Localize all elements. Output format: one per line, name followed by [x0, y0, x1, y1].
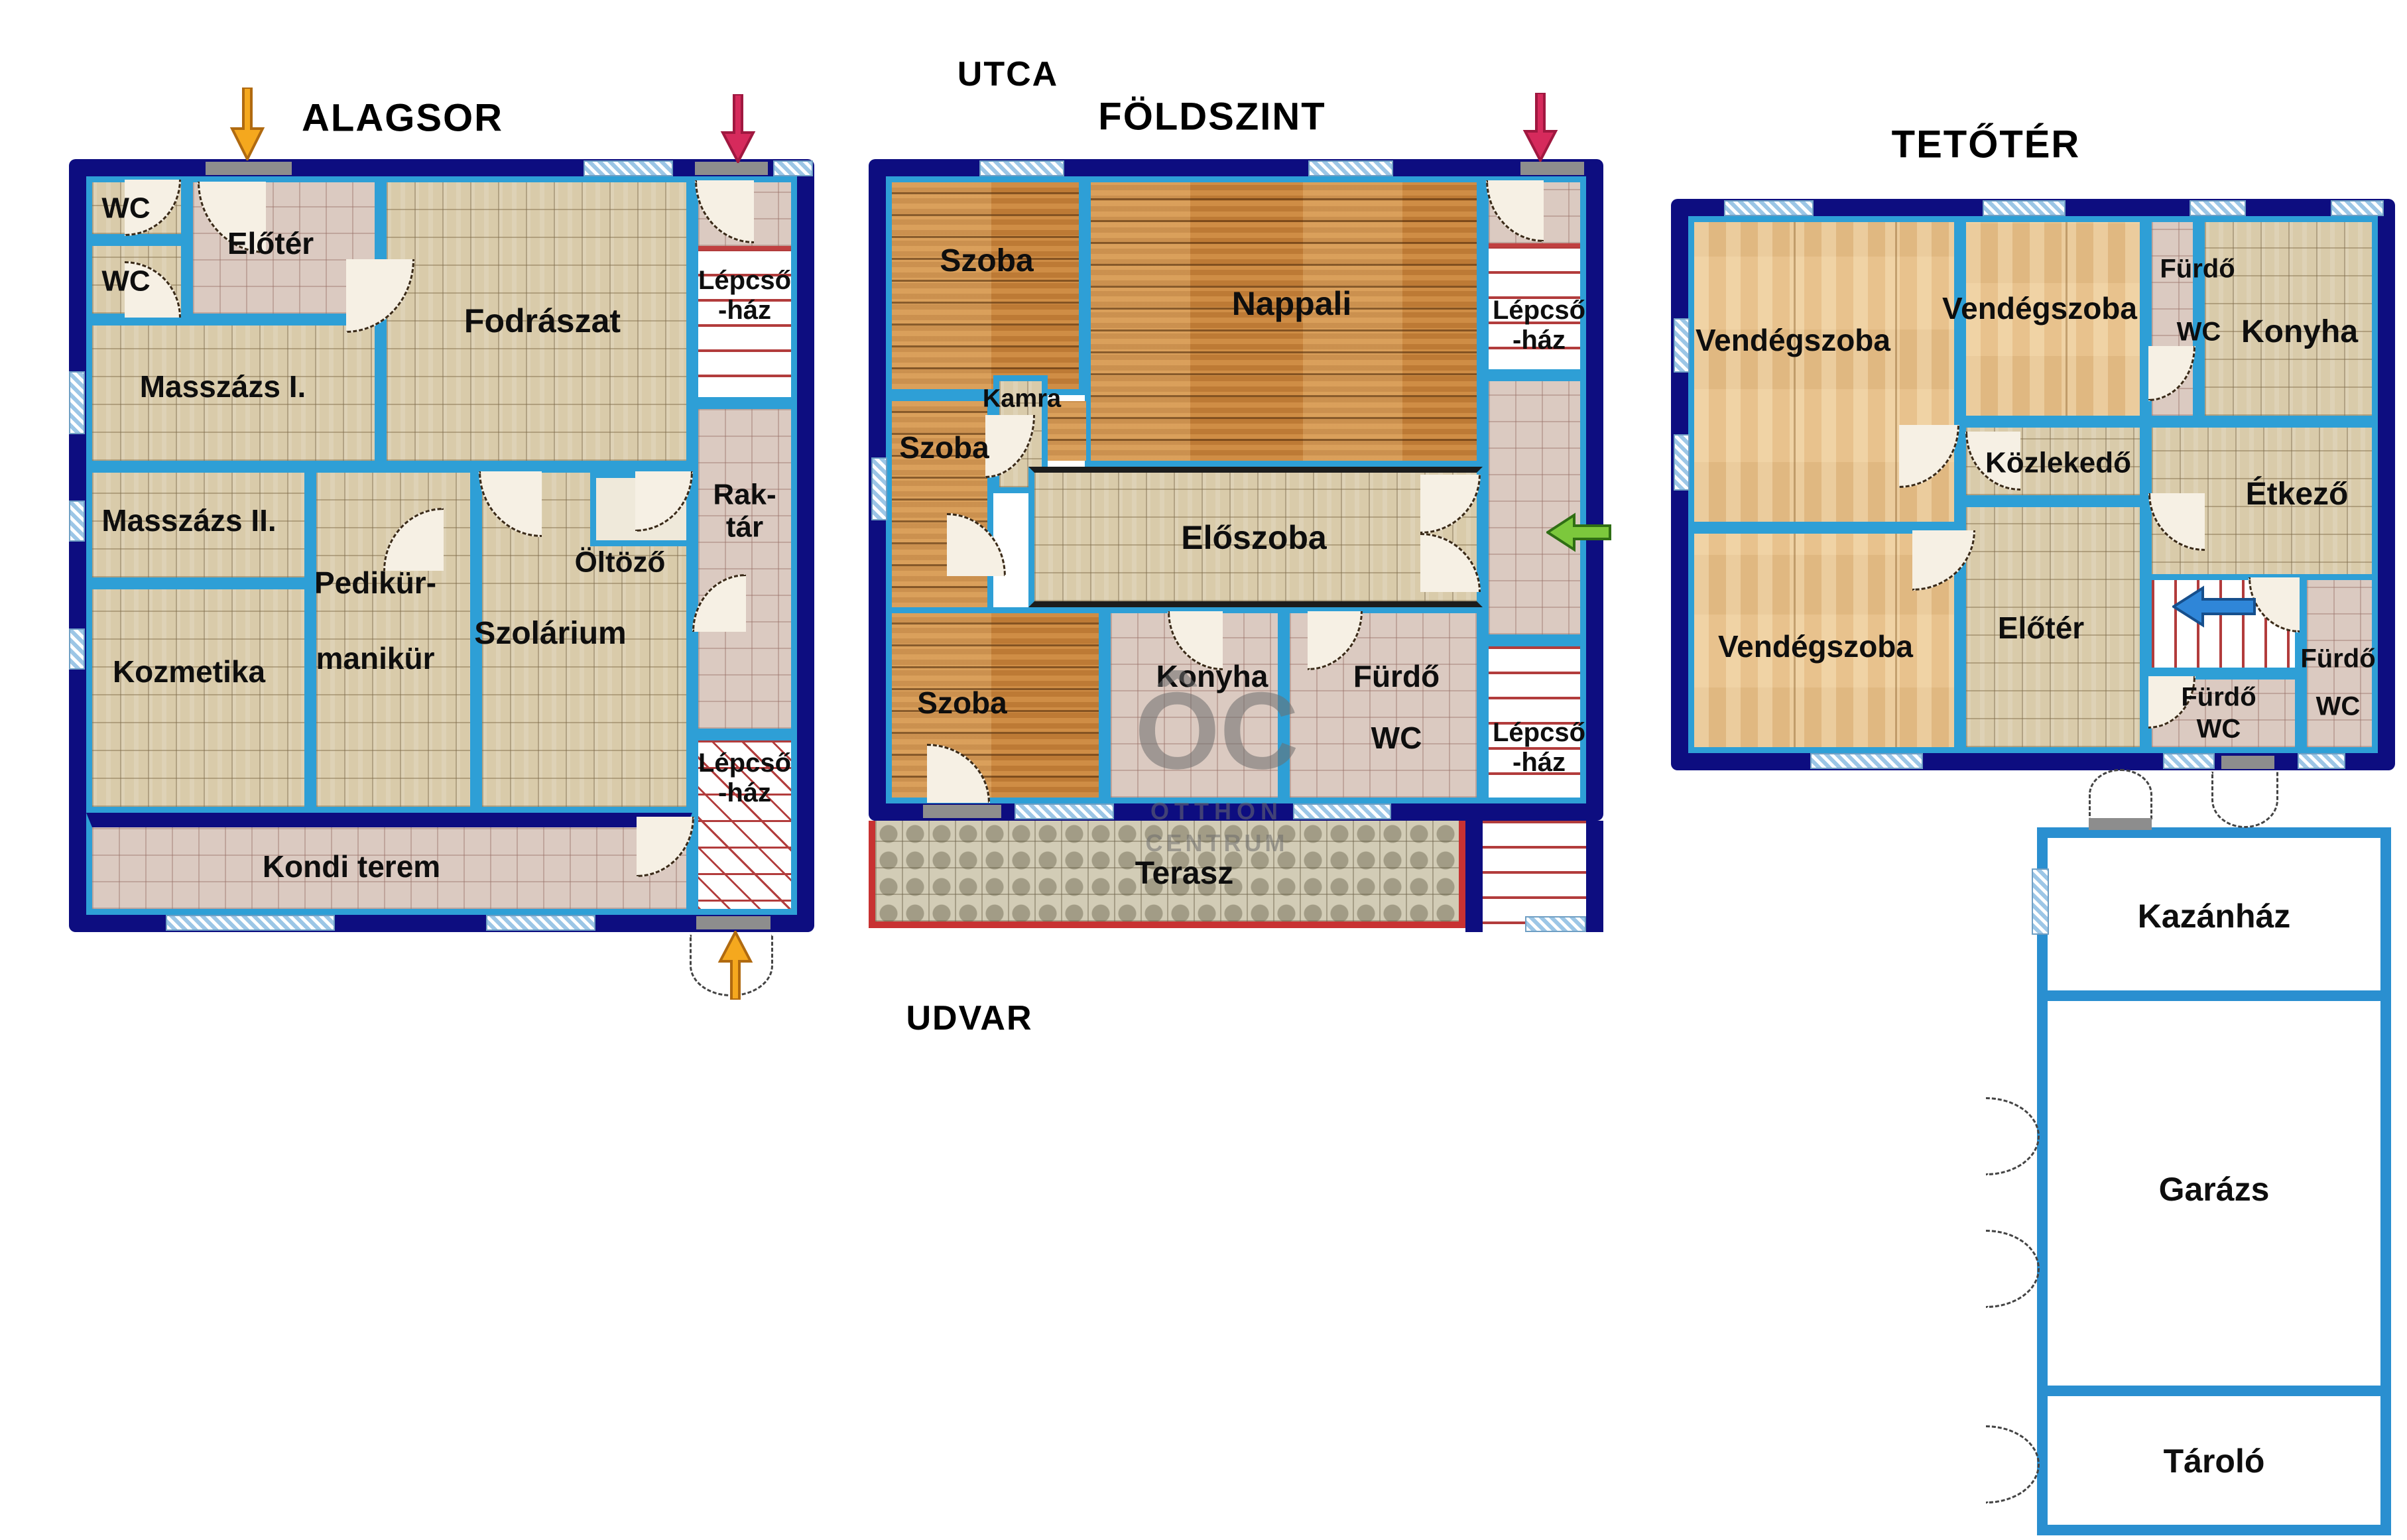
window	[871, 457, 887, 520]
yard-label: UDVAR	[906, 998, 1032, 1038]
room-label: Pedikür-	[314, 566, 436, 601]
basement-cosmetics-room	[86, 583, 310, 813]
room-label: WC	[2197, 715, 2241, 744]
window	[69, 371, 85, 434]
ground-room1	[886, 176, 1085, 395]
room-label: Kozmetika	[113, 655, 265, 689]
street-label: UTCA	[957, 54, 1058, 94]
room-label: Nappali	[1232, 285, 1352, 322]
room-label: Kazánház	[2138, 898, 2291, 935]
room-label: Szoba	[940, 243, 1033, 279]
room-label: Tároló	[2164, 1443, 2265, 1480]
room-label: Masszázs II.	[101, 504, 276, 538]
arrow-left-green-icon	[1546, 512, 1611, 553]
room-label: Terasz	[1135, 856, 1234, 892]
door-opening	[923, 805, 1001, 818]
room-label: WC	[101, 265, 150, 297]
door-swing	[947, 513, 1006, 576]
door-opening	[2221, 756, 2274, 769]
window	[2163, 753, 2215, 769]
window	[979, 160, 1064, 176]
window	[2190, 200, 2246, 216]
room-label: WC	[2316, 692, 2361, 722]
arrow-down-orange-icon	[229, 88, 265, 160]
room-label: Lépcső -ház	[698, 748, 791, 808]
ground-corridor	[1483, 375, 1586, 640]
window	[1293, 803, 1391, 819]
room-label: Masszázs I.	[140, 370, 306, 404]
room-label: Előtér	[227, 227, 314, 261]
outbuilding-door-swing	[2089, 769, 2152, 820]
window	[1810, 753, 1923, 769]
ground-title: FÖLDSZINT	[1098, 95, 1326, 139]
door-opening	[696, 916, 771, 929]
room-label: Konyha	[2241, 314, 2358, 350]
room-label: manikür	[316, 642, 435, 676]
room-label: Öltöző	[575, 546, 666, 578]
window	[1015, 803, 1114, 819]
room-label: Fürdő	[2181, 683, 2256, 713]
room-label: Vendégszoba	[1718, 630, 1913, 664]
window	[486, 915, 595, 931]
door-opening	[2089, 818, 2152, 830]
room-label: Vendégszoba	[1942, 292, 2137, 326]
room-label: Fürdő	[2160, 255, 2235, 284]
arrow-down-red-icon	[1522, 93, 1558, 162]
window	[1724, 200, 1814, 216]
room-label: Étkező	[2246, 477, 2349, 512]
window	[1983, 200, 2066, 216]
outbuilding-wall	[2048, 990, 2380, 1001]
room-label: Szolárium	[474, 616, 626, 652]
room-label: Garázs	[2159, 1171, 2270, 1208]
room-label: Közlekedő	[1985, 446, 2131, 479]
garage-door-swing	[1986, 1097, 2040, 1175]
garage-door-swing	[1986, 1230, 2040, 1308]
room-label: Szoba	[917, 686, 1007, 721]
room-label: WC	[2177, 318, 2221, 347]
outbuilding-wall	[2048, 1386, 2380, 1396]
room-label: Kamra	[983, 385, 1061, 414]
room-label: Kondi terem	[263, 850, 440, 884]
window	[2298, 753, 2345, 769]
watermark-logo: ÔC OTTHON CENTRUM	[1135, 676, 1299, 857]
room-label: Lépcső -ház	[1493, 296, 1585, 355]
room-label: Fürdő	[2300, 644, 2375, 674]
window	[69, 628, 85, 670]
basement-plan: WC WC Előtér Fodrászat Lépcső -ház Massz…	[69, 159, 814, 932]
window	[2032, 868, 2049, 935]
window	[773, 160, 813, 176]
door-opening	[1520, 162, 1584, 175]
basement-pedicure-room	[310, 467, 476, 813]
window	[166, 915, 335, 931]
storage-door-swing	[1986, 1425, 2040, 1504]
room-label: Rak- tár	[713, 479, 776, 544]
window	[1674, 318, 1690, 373]
room-label: Előtér	[1998, 611, 2084, 646]
room-label: Fürdő	[1353, 660, 1440, 694]
window	[2331, 200, 2384, 216]
ground-room2	[886, 395, 993, 614]
room-label: Fodrászat	[464, 302, 621, 339]
room-label: Vendégszoba	[1696, 324, 1890, 358]
basement-title: ALAGSOR	[302, 96, 503, 141]
attic-plan: Vendégszoba Vendégszoba Fürdő WC Konyha …	[1671, 199, 2395, 770]
window	[69, 501, 85, 542]
basement-storage-room	[692, 403, 797, 735]
attic-exit-door-swing	[2211, 772, 2278, 828]
arrow-left-blue-icon	[2172, 585, 2257, 628]
room-label: Előszoba	[1181, 519, 1326, 556]
room-label: Lépcső -ház	[698, 266, 791, 326]
room-label: Lépcső -ház	[1493, 718, 1585, 778]
door-opening	[695, 162, 768, 175]
room-label: WC	[1371, 721, 1422, 756]
ground-stairwell-extension	[1465, 821, 1603, 932]
window	[584, 160, 673, 176]
attic-title: TETŐTÉR	[1892, 123, 2081, 167]
window	[1308, 160, 1393, 176]
room-label: Szoba	[899, 431, 989, 465]
arrow-up-orange-icon	[717, 931, 753, 1000]
room-label: WC	[101, 192, 150, 224]
outbuilding-plan: Kazánház Garázs Tároló	[2037, 827, 2391, 1535]
arrow-down-red-icon	[720, 94, 756, 163]
door-opening	[206, 162, 292, 175]
window	[1525, 916, 1586, 932]
window	[1674, 434, 1690, 491]
